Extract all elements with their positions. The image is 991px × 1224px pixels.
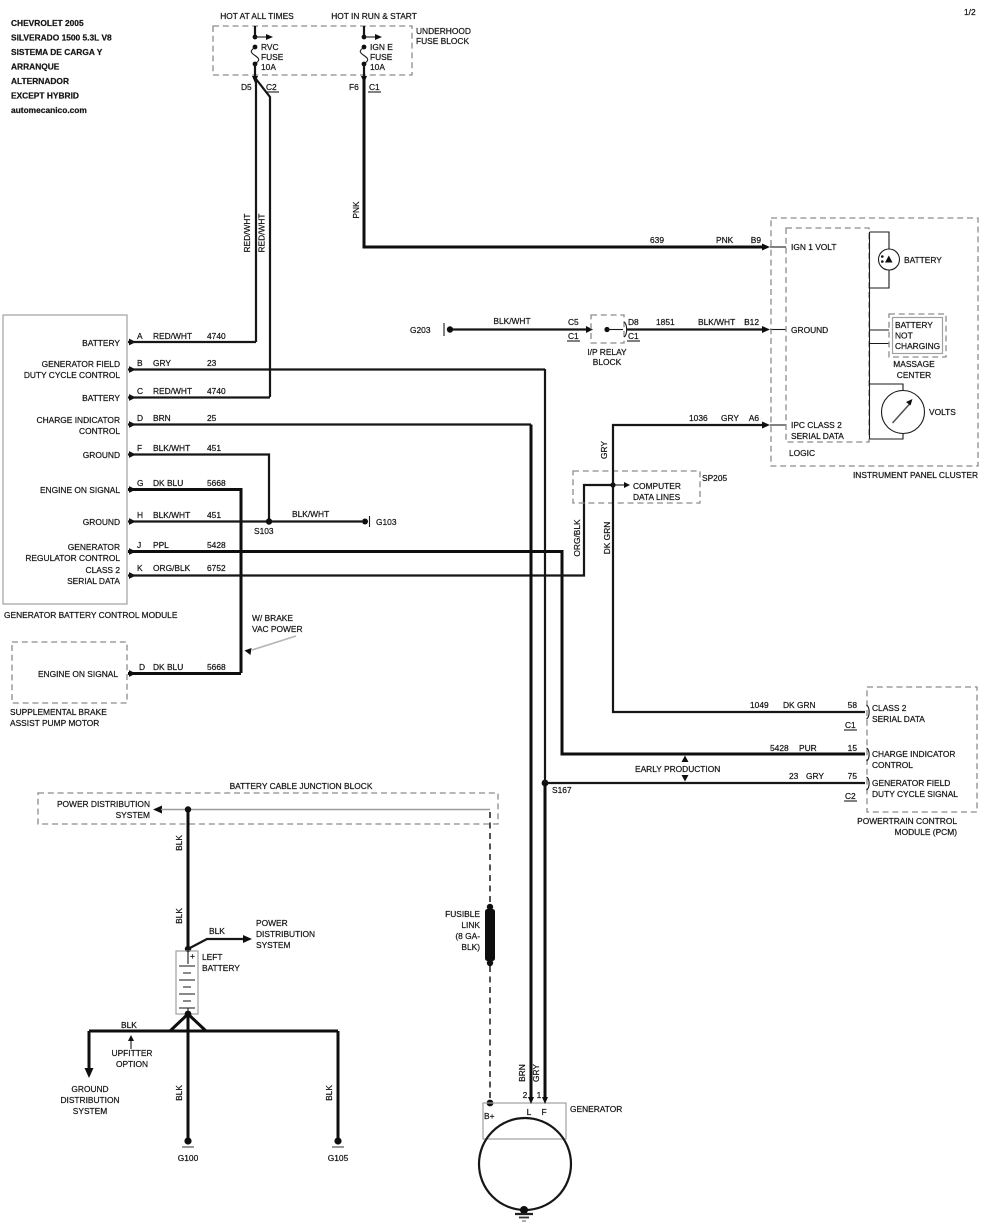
svg-text:G: G	[137, 478, 144, 488]
svg-text:RED/WHT: RED/WHT	[153, 386, 192, 396]
svg-text:G105: G105	[328, 1153, 349, 1163]
svg-text:C1: C1	[568, 331, 579, 341]
svg-text:D: D	[137, 413, 143, 423]
svg-text:5428: 5428	[770, 743, 789, 753]
svg-text:FUSE: FUSE	[261, 52, 284, 62]
svg-text:PUR: PUR	[799, 743, 817, 753]
svg-text:EARLY PRODUCTION: EARLY PRODUCTION	[635, 764, 720, 774]
svg-text:INSTRUMENT PANEL CLUSTER: INSTRUMENT PANEL CLUSTER	[853, 470, 978, 480]
svg-text:FUSE: FUSE	[370, 52, 393, 62]
svg-text:UNDERHOOD: UNDERHOOD	[416, 26, 471, 36]
svg-text:G103: G103	[376, 517, 397, 527]
svg-text:10A: 10A	[370, 62, 385, 72]
svg-text:GROUND: GROUND	[71, 1084, 108, 1094]
svg-text:1049: 1049	[750, 700, 769, 710]
svg-text:C: C	[137, 386, 143, 396]
svg-text:DK GRN: DK GRN	[602, 522, 612, 555]
svg-text:BRN: BRN	[153, 413, 171, 423]
svg-text:SISTEMA DE CARGA Y: SISTEMA DE CARGA Y	[11, 47, 103, 57]
svg-text:C5: C5	[568, 317, 579, 327]
svg-text:A: A	[137, 331, 143, 341]
svg-text:EXCEPT HYBRID: EXCEPT HYBRID	[11, 91, 79, 101]
svg-text:SYSTEM: SYSTEM	[256, 940, 290, 950]
svg-text:5668: 5668	[207, 478, 226, 488]
svg-text:CONTROL: CONTROL	[79, 426, 120, 436]
svg-text:G203: G203	[410, 325, 431, 335]
svg-text:IGN E: IGN E	[370, 42, 393, 52]
svg-text:SP205: SP205	[702, 473, 727, 483]
svg-text:C2: C2	[266, 82, 277, 92]
svg-text:75: 75	[848, 771, 858, 781]
svg-text:BATTERY: BATTERY	[82, 393, 120, 403]
svg-text:23: 23	[789, 771, 799, 781]
svg-text:GROUND: GROUND	[791, 325, 828, 335]
svg-text:CLASS 2: CLASS 2	[872, 703, 907, 713]
svg-text:GROUND: GROUND	[83, 517, 120, 527]
svg-text:BATTERY: BATTERY	[904, 255, 942, 265]
svg-text:DK GRN: DK GRN	[783, 700, 816, 710]
svg-text:DATA LINES: DATA LINES	[633, 492, 681, 502]
svg-text:SERIAL DATA: SERIAL DATA	[791, 431, 844, 441]
svg-text:GENERATOR: GENERATOR	[68, 542, 120, 552]
svg-text:L: L	[527, 1107, 532, 1117]
svg-text:25: 25	[207, 413, 217, 423]
svg-text:ENGINE ON SIGNAL: ENGINE ON SIGNAL	[40, 485, 120, 495]
svg-text:C1: C1	[369, 82, 380, 92]
svg-text:BLK: BLK	[324, 1085, 334, 1101]
svg-text:RED/WHT: RED/WHT	[257, 213, 267, 252]
svg-text:ASSIST PUMP MOTOR: ASSIST PUMP MOTOR	[10, 718, 99, 728]
svg-text:BLK/WHT: BLK/WHT	[698, 317, 735, 327]
svg-text:PPL: PPL	[153, 540, 169, 550]
svg-text:REGULATOR CONTROL: REGULATOR CONTROL	[25, 553, 120, 563]
svg-text:RED/WHT: RED/WHT	[153, 331, 192, 341]
svg-text:GRY: GRY	[721, 413, 739, 423]
svg-text:BLK: BLK	[174, 908, 184, 924]
svg-text:BLK: BLK	[174, 1085, 184, 1101]
svg-text:LEFT: LEFT	[202, 952, 222, 962]
svg-text:FUSIBLE: FUSIBLE	[445, 909, 480, 919]
svg-text:1/2: 1/2	[964, 7, 976, 17]
svg-text:S103: S103	[254, 526, 274, 536]
svg-text:F6: F6	[349, 82, 359, 92]
svg-text:CHARGE INDICATOR: CHARGE INDICATOR	[872, 749, 955, 759]
svg-text:DK BLU: DK BLU	[153, 662, 183, 672]
svg-text:C1: C1	[845, 720, 856, 730]
svg-text:(8 GA-: (8 GA-	[455, 931, 480, 941]
svg-text:451: 451	[207, 510, 221, 520]
svg-text:MODULE (PCM): MODULE (PCM)	[895, 827, 958, 837]
svg-text:GRY: GRY	[599, 441, 609, 459]
svg-text:UPFITTER: UPFITTER	[112, 1048, 153, 1058]
svg-text:IGN 1 VOLT: IGN 1 VOLT	[791, 242, 836, 252]
svg-text:4740: 4740	[207, 331, 226, 341]
svg-text:GENERATOR FIELD: GENERATOR FIELD	[42, 359, 120, 369]
svg-text:ORG/BLK: ORG/BLK	[153, 563, 191, 573]
svg-text:ORG/BLK: ORG/BLK	[572, 519, 582, 557]
svg-text:DK BLU: DK BLU	[153, 478, 183, 488]
svg-text:VOLTS: VOLTS	[929, 407, 956, 417]
svg-text:POWER DISTRIBUTION: POWER DISTRIBUTION	[57, 799, 150, 809]
svg-text:BRN: BRN	[517, 1064, 527, 1082]
svg-text:DISTRIBUTION: DISTRIBUTION	[60, 1095, 119, 1105]
svg-text:10A: 10A	[261, 62, 276, 72]
svg-text:SYSTEM: SYSTEM	[116, 810, 150, 820]
svg-text:BLK: BLK	[121, 1020, 137, 1030]
svg-text:RED/WHT: RED/WHT	[242, 213, 252, 252]
svg-text:DUTY CYCLE CONTROL: DUTY CYCLE CONTROL	[24, 370, 121, 380]
svg-text:23: 23	[207, 358, 217, 368]
svg-text:+: +	[190, 951, 195, 961]
svg-text:I/P RELAY: I/P RELAY	[587, 347, 627, 357]
svg-text:PNK: PNK	[716, 235, 734, 245]
svg-text:LINK: LINK	[461, 920, 480, 930]
svg-text:COMPUTER: COMPUTER	[633, 481, 681, 491]
svg-text:POWERTRAIN CONTROL: POWERTRAIN CONTROL	[857, 816, 957, 826]
svg-text:FUSE BLOCK: FUSE BLOCK	[416, 36, 469, 46]
svg-text:BATTERY CABLE JUNCTION BLOCK: BATTERY CABLE JUNCTION BLOCK	[230, 781, 373, 791]
svg-text:G100: G100	[178, 1153, 199, 1163]
svg-text:S167: S167	[552, 785, 572, 795]
svg-text:HOT AT ALL TIMES: HOT AT ALL TIMES	[220, 11, 294, 21]
svg-text:GENERATOR BATTERY CONTROL MODU: GENERATOR BATTERY CONTROL MODULE	[4, 610, 178, 620]
svg-text:CHEVROLET 2005: CHEVROLET 2005	[11, 18, 84, 28]
svg-text:H: H	[137, 510, 143, 520]
svg-text:639: 639	[650, 235, 664, 245]
svg-text:SUPPLEMENTAL BRAKE: SUPPLEMENTAL BRAKE	[10, 707, 107, 717]
svg-text:LOGIC: LOGIC	[789, 448, 815, 458]
svg-text:4740: 4740	[207, 386, 226, 396]
svg-text:BLK/WHT: BLK/WHT	[153, 443, 190, 453]
svg-text:J: J	[137, 540, 141, 550]
svg-text:BATTERY: BATTERY	[202, 963, 240, 973]
svg-text:ENGINE ON SIGNAL: ENGINE ON SIGNAL	[38, 669, 118, 679]
svg-text:SERIAL DATA: SERIAL DATA	[872, 714, 925, 724]
svg-text:B12: B12	[744, 317, 759, 327]
svg-text:C2: C2	[845, 791, 856, 801]
svg-text:CLASS 2: CLASS 2	[86, 565, 121, 575]
svg-text:BLK/WHT: BLK/WHT	[493, 316, 530, 326]
svg-text:BLK: BLK	[174, 835, 184, 851]
svg-text:ALTERNADOR: ALTERNADOR	[11, 76, 69, 86]
svg-text:NOT: NOT	[895, 331, 913, 341]
svg-text:GENERATOR: GENERATOR	[570, 1104, 622, 1114]
svg-text:C1: C1	[628, 331, 639, 341]
svg-text:CENTER: CENTER	[897, 370, 931, 380]
svg-text:5668: 5668	[207, 662, 226, 672]
svg-text:BLK/WHT: BLK/WHT	[292, 509, 329, 519]
svg-text:SILVERADO 1500 5.3L V8: SILVERADO 1500 5.3L V8	[11, 33, 112, 43]
svg-text:MASSAGE: MASSAGE	[893, 359, 935, 369]
svg-text:D5: D5	[241, 82, 252, 92]
svg-text:GRY: GRY	[806, 771, 824, 781]
svg-text:ARRANQUE: ARRANQUE	[11, 62, 60, 72]
svg-text:DISTRIBUTION: DISTRIBUTION	[256, 929, 315, 939]
svg-text:BATTERY: BATTERY	[895, 320, 933, 330]
svg-text:6752: 6752	[207, 563, 226, 573]
svg-text:1851: 1851	[656, 317, 675, 327]
svg-text:F: F	[541, 1107, 546, 1117]
svg-text:1036: 1036	[689, 413, 708, 423]
svg-text:CHARGING: CHARGING	[895, 341, 940, 351]
svg-text:451: 451	[207, 443, 221, 453]
svg-text:1: 1	[537, 1090, 542, 1100]
svg-text:B9: B9	[751, 235, 762, 245]
svg-text:CONTROL: CONTROL	[872, 760, 913, 770]
svg-text:2: 2	[523, 1090, 528, 1100]
svg-text:BLK/WHT: BLK/WHT	[153, 510, 190, 520]
svg-text:GENERATOR FIELD: GENERATOR FIELD	[872, 778, 950, 788]
svg-text:5428: 5428	[207, 540, 226, 550]
svg-text:SYSTEM: SYSTEM	[73, 1106, 107, 1116]
svg-text:K: K	[137, 563, 143, 573]
svg-text:GRY: GRY	[531, 1064, 541, 1082]
svg-text:B+: B+	[484, 1111, 495, 1121]
svg-text:BLK: BLK	[209, 926, 225, 936]
svg-text:58: 58	[848, 700, 858, 710]
svg-text:W/ BRAKE: W/ BRAKE	[252, 613, 293, 623]
svg-text:CHARGE INDICATOR: CHARGE INDICATOR	[37, 415, 120, 425]
svg-text:F: F	[137, 443, 142, 453]
svg-text:B: B	[137, 358, 143, 368]
svg-text:IPC CLASS 2: IPC CLASS 2	[791, 420, 842, 430]
svg-text:PNK: PNK	[351, 201, 361, 219]
svg-text:D: D	[139, 662, 145, 672]
svg-text:BATTERY: BATTERY	[82, 338, 120, 348]
svg-text:POWER: POWER	[256, 918, 288, 928]
svg-text:GROUND: GROUND	[83, 450, 120, 460]
svg-text:BLOCK: BLOCK	[593, 357, 622, 367]
svg-text:GRY: GRY	[153, 358, 171, 368]
svg-text:SERIAL DATA: SERIAL DATA	[67, 576, 120, 586]
svg-text:15: 15	[848, 743, 858, 753]
svg-text:D8: D8	[628, 317, 639, 327]
svg-text:OPTION: OPTION	[116, 1059, 148, 1069]
svg-text:DUTY CYCLE SIGNAL: DUTY CYCLE SIGNAL	[872, 789, 958, 799]
svg-text:A6: A6	[749, 413, 760, 423]
svg-text:HOT IN RUN & START: HOT IN RUN & START	[331, 11, 417, 21]
svg-text:RVC: RVC	[261, 42, 279, 52]
svg-text:automecanico.com: automecanico.com	[11, 105, 87, 115]
svg-text:VAC POWER: VAC POWER	[252, 624, 303, 634]
svg-text:BLK): BLK)	[461, 942, 480, 952]
